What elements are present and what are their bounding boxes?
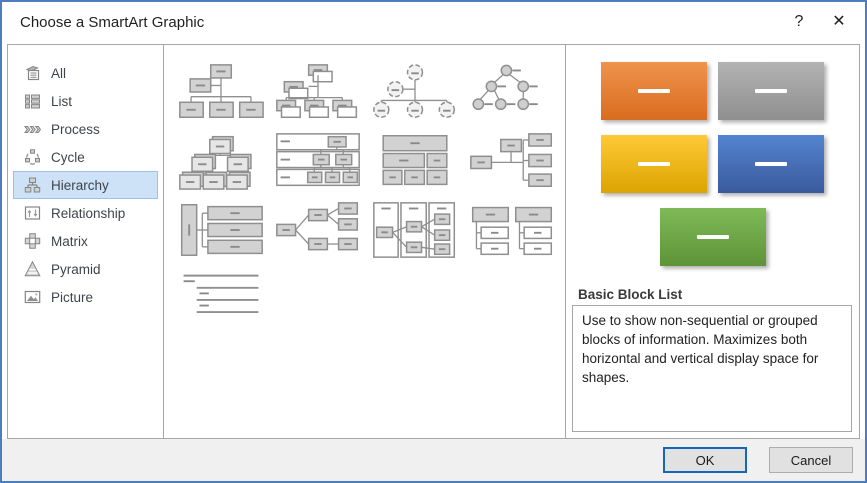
sidebar-item-all[interactable]: All (13, 59, 158, 87)
layout-gallery (164, 45, 566, 438)
gallery-item-hierarchy-list[interactable] (172, 195, 269, 264)
gallery-item-organization-chart[interactable] (172, 57, 269, 126)
pyramid-icon (24, 261, 41, 277)
layout-description: Use to show non-sequential or grouped bl… (572, 305, 852, 432)
organization-chart-thumbnail (177, 63, 265, 121)
sidebar-item-picture[interactable]: Picture (13, 283, 158, 311)
sidebar-item-label: All (51, 66, 66, 81)
sidebar-item-label: Cycle (51, 150, 85, 165)
sidebar-item-label: Relationship (51, 206, 125, 221)
gallery-item-horizontal-hierarchy[interactable] (269, 195, 366, 264)
gallery-item-labeled-hierarchy[interactable] (463, 195, 560, 264)
gallery-item-architecture-layout[interactable] (269, 126, 366, 195)
orange-block (601, 62, 707, 120)
title-bar: Choose a SmartArt Graphic ? ✕ (2, 2, 865, 42)
lined-list-thumbnail (177, 270, 265, 328)
help-button[interactable]: ? (779, 7, 819, 37)
cycle-icon (24, 149, 41, 165)
gallery-item-horizontal-organization-chart[interactable] (463, 126, 560, 195)
dialog-content: AllListProcessCycleHierarchyRelationship… (7, 44, 860, 439)
preview-block-row (660, 208, 766, 266)
layout-name: Basic Block List (578, 287, 682, 302)
blue-block (718, 135, 824, 193)
sidebar-item-process[interactable]: Process (13, 115, 158, 143)
block-dash (697, 235, 729, 240)
horizontal-multi-level-hierarchy-thumbnail (371, 201, 459, 259)
sidebar-item-label: Matrix (51, 234, 88, 249)
name-and-title-organization-chart-thumbnail (274, 63, 362, 121)
sidebar-item-cycle[interactable]: Cycle (13, 143, 158, 171)
titlebar-buttons: ? ✕ (779, 7, 859, 37)
block-dash (638, 162, 670, 167)
circle-picture-hierarchy-thumbnail (468, 63, 556, 121)
gallery-item-circle-picture-hierarchy[interactable] (463, 57, 560, 126)
labeled-hierarchy-thumbnail (468, 201, 556, 259)
preview-block-row (601, 135, 824, 193)
picture-icon (24, 289, 41, 305)
hierarchy-list-thumbnail (177, 201, 265, 259)
green-block (660, 208, 766, 266)
list-icon (24, 93, 41, 109)
relationship-icon (24, 205, 41, 221)
sidebar-item-hierarchy[interactable]: Hierarchy (13, 171, 158, 199)
gallery-item-horizontal-multi-level-hierarchy[interactable] (366, 195, 463, 264)
sidebar-item-label: Picture (51, 290, 93, 305)
dialog-title: Choose a SmartArt Graphic (20, 14, 204, 31)
gallery-item-lined-list[interactable] (172, 264, 269, 333)
gallery-item-table-hierarchy[interactable] (366, 126, 463, 195)
architecture-layout-thumbnail (274, 132, 362, 190)
sidebar-item-relationship[interactable]: Relationship (13, 199, 158, 227)
sidebar-item-label: List (51, 94, 72, 109)
table-hierarchy-thumbnail (371, 132, 459, 190)
sidebar-item-pyramid[interactable]: Pyramid (13, 255, 158, 283)
preview-block-row (601, 62, 824, 120)
process-icon (24, 121, 41, 137)
block-dash (755, 89, 787, 94)
horizontal-hierarchy-thumbnail (274, 201, 362, 259)
block-dash (638, 89, 670, 94)
horizontal-organization-chart-thumbnail (468, 132, 556, 190)
dialog-footer: OK Cancel (2, 439, 865, 481)
preview-graphic (566, 62, 859, 281)
sidebar-item-label: Process (51, 122, 100, 137)
ok-button[interactable]: OK (663, 447, 747, 473)
sidebar-item-label: Pyramid (51, 262, 101, 277)
cancel-button[interactable]: Cancel (769, 447, 853, 473)
half-circle-organization-chart-thumbnail (371, 63, 459, 121)
hierarchy-icon (24, 177, 41, 193)
gold-block (601, 135, 707, 193)
smartart-dialog: Choose a SmartArt Graphic ? ✕ AllListPro… (0, 0, 867, 483)
picture-organization-chart-thumbnail (177, 132, 265, 190)
all-icon (24, 65, 41, 81)
sidebar-item-list[interactable]: List (13, 87, 158, 115)
gray-block (718, 62, 824, 120)
preview-pane: Basic Block List Use to show non-sequent… (566, 45, 859, 438)
sidebar-item-label: Hierarchy (51, 178, 109, 193)
gallery-item-picture-organization-chart[interactable] (172, 126, 269, 195)
gallery-item-half-circle-organization-chart[interactable] (366, 57, 463, 126)
close-button[interactable]: ✕ (819, 7, 859, 37)
category-list: AllListProcessCycleHierarchyRelationship… (8, 45, 164, 438)
matrix-icon (24, 233, 41, 249)
gallery-item-name-and-title-organization-chart[interactable] (269, 57, 366, 126)
block-dash (755, 162, 787, 167)
sidebar-item-matrix[interactable]: Matrix (13, 227, 158, 255)
